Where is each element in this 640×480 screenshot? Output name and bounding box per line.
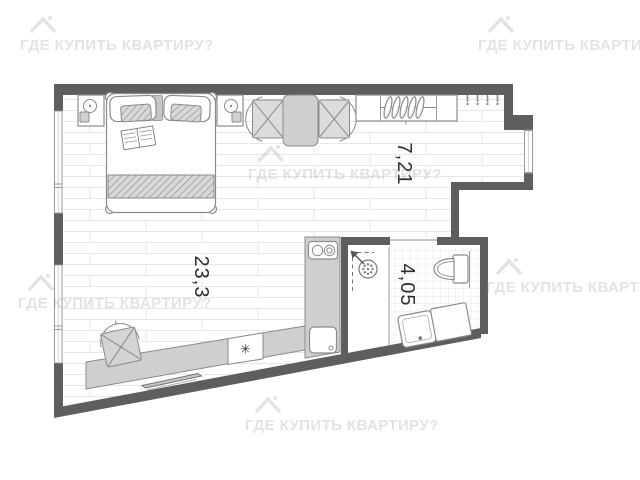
snowflake-icon: ✳	[240, 343, 251, 358]
clothes-hangers-icon	[382, 96, 425, 119]
wall-bathroom-right	[480, 245, 488, 334]
wardrobe	[356, 95, 457, 125]
cushion-right	[170, 104, 201, 122]
wall-bathroom-divider	[341, 237, 348, 355]
kitchen-counter	[305, 237, 340, 358]
room-area-label-bathroom: 4,05	[396, 264, 418, 307]
shower-tray	[397, 310, 436, 348]
wall-notch-top	[451, 182, 533, 190]
wall-left-upper	[54, 84, 63, 111]
floor-plan-page: ✳	[0, 0, 640, 480]
wall-left-mid	[54, 213, 63, 265]
wall-bathroom-top-right	[437, 237, 488, 245]
nightstand-right	[217, 95, 243, 126]
wall-notch-left	[451, 182, 459, 245]
floor-plan-drawing: ✳	[0, 0, 640, 480]
wall-bathroom-top-left	[341, 237, 390, 245]
washing-machine	[430, 302, 471, 341]
cushion-left	[120, 104, 151, 122]
room-area-label-hall: 7,21	[393, 143, 415, 186]
window-left-upper	[55, 111, 63, 213]
kitchen-sink	[310, 327, 337, 353]
nightstand-left	[78, 95, 104, 126]
room-area-label-main: 23,3	[190, 256, 212, 299]
window-right	[525, 130, 533, 173]
shower-drain-icon	[359, 260, 377, 278]
stove	[309, 242, 338, 260]
wall-step-top-right	[504, 115, 533, 130]
bed-blanket	[108, 175, 214, 198]
dining-table	[283, 95, 318, 146]
window-left-lower	[55, 265, 63, 363]
double-bed	[106, 93, 217, 214]
